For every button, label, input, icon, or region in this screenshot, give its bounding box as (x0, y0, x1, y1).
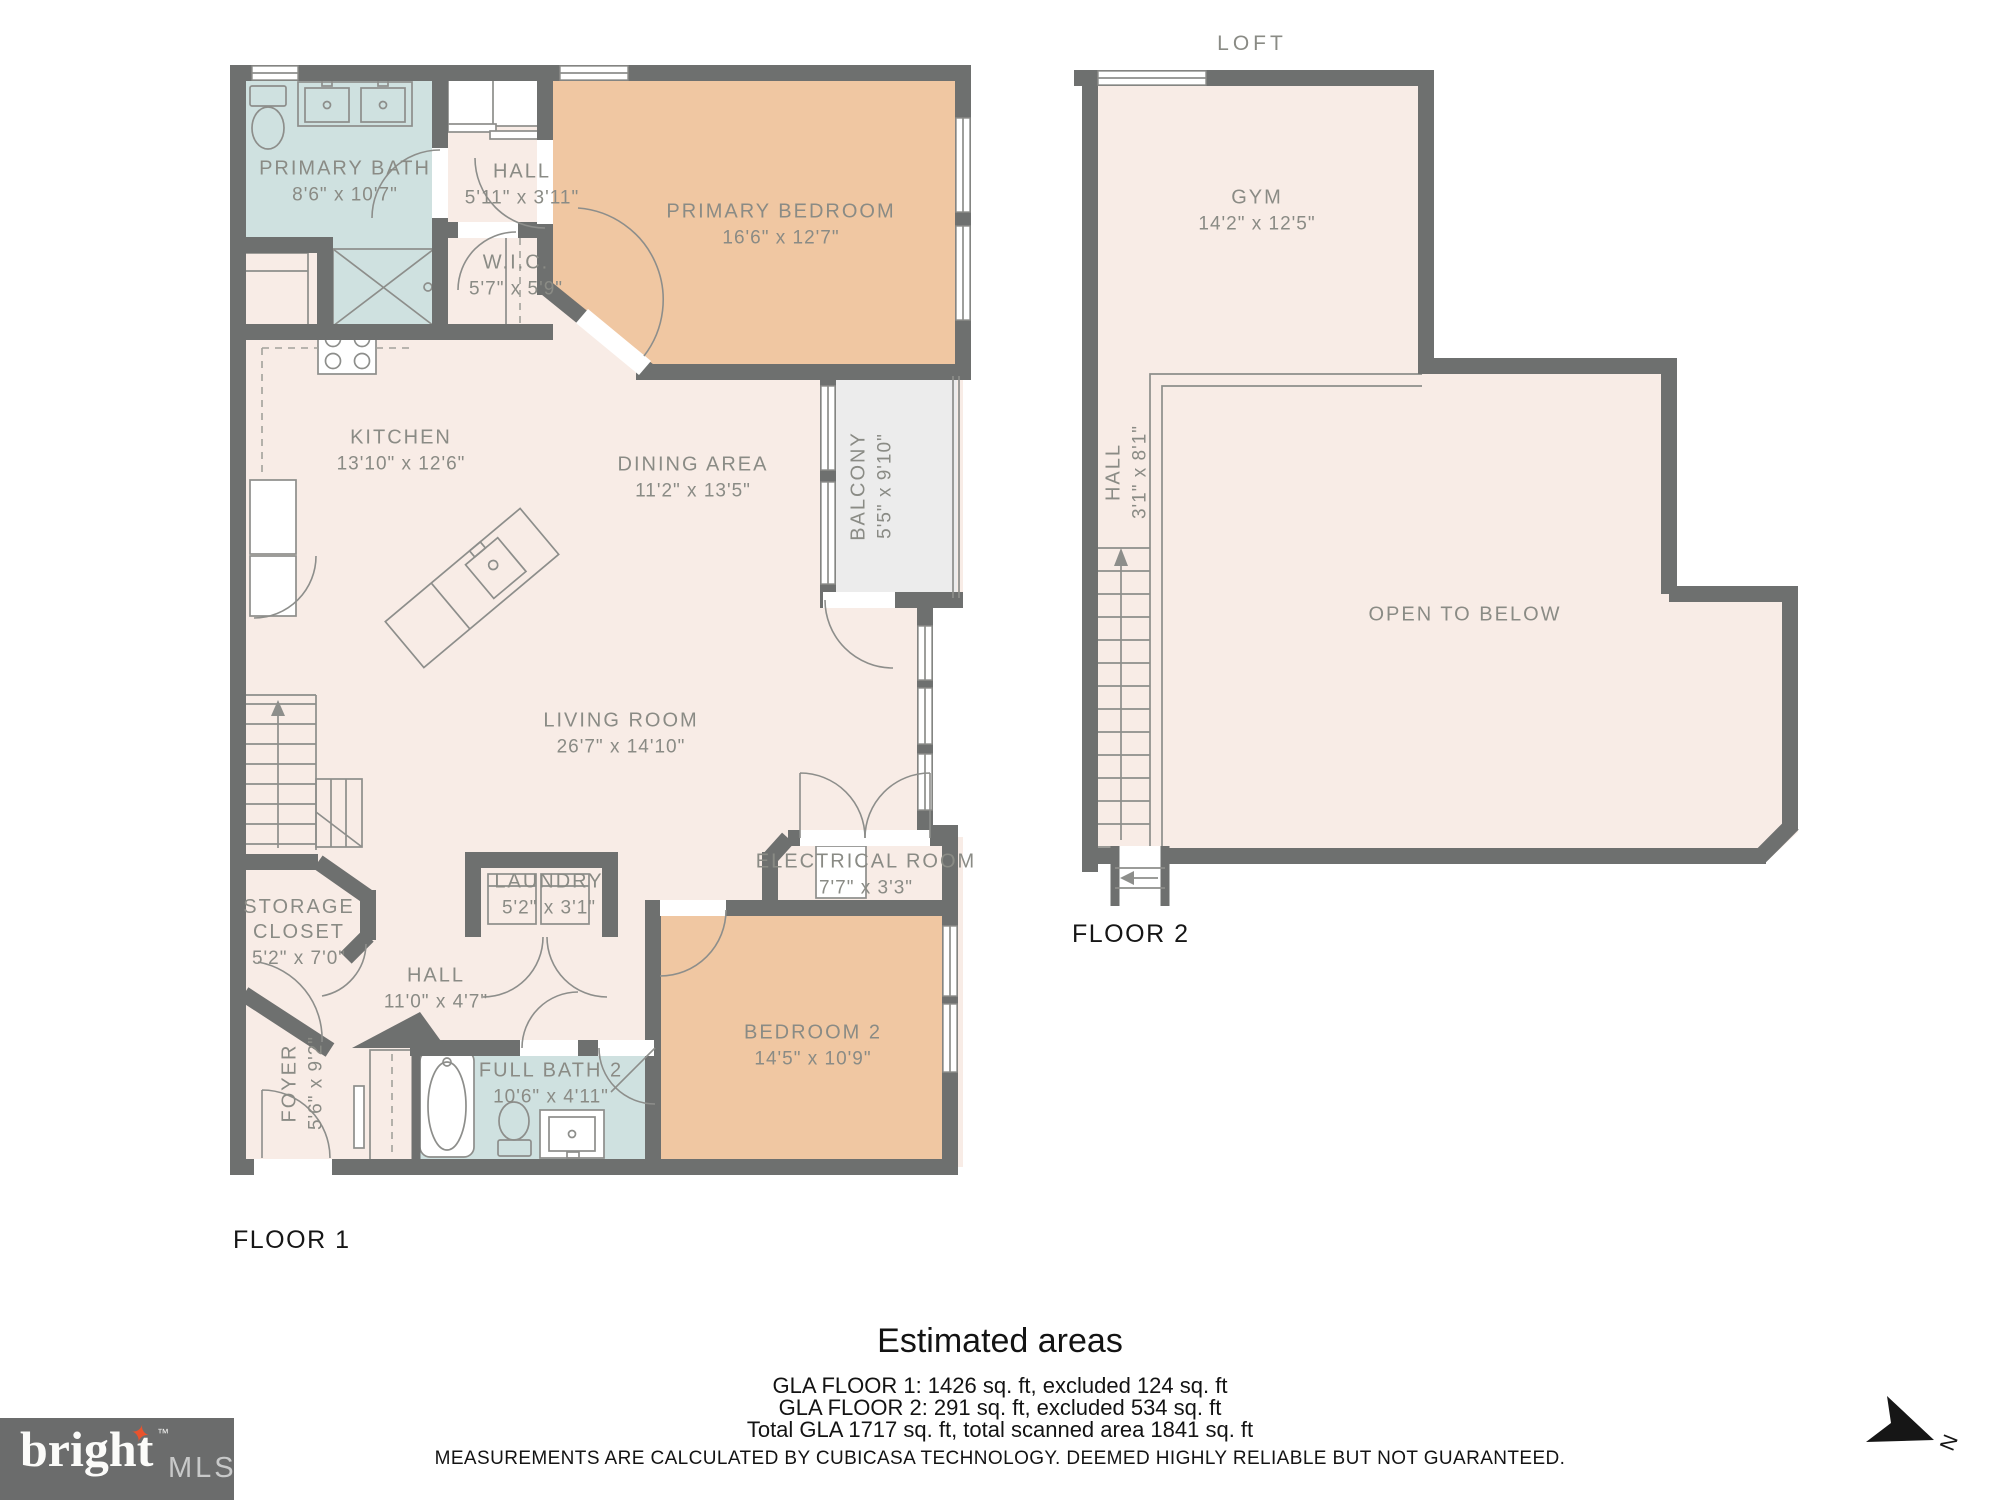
floorplan-drawing (0, 0, 2000, 1500)
floor1-tag: FLOOR 1 (233, 1226, 350, 1255)
room-label-gym: GYM 14'2" x 12'5" (1198, 186, 1315, 237)
windows-floor2 (1098, 71, 1206, 85)
floorplan-page: PRIMARY BATH 8'6" x 10'7" HALL 5'11" x 3… (0, 0, 2000, 1500)
room-label-hall-floor2: HALL 3'1" x 8'1" (1102, 425, 1153, 519)
room-label-kitchen: KITCHEN 13'10" x 12'6" (337, 426, 466, 477)
room-label-dining: DINING AREA 11'2" x 13'5" (618, 453, 769, 504)
brightmls-logo: bright ✦ ™ MLS (0, 1418, 234, 1500)
room-label-open-to-below: OPEN TO BELOW (1368, 603, 1561, 628)
room-label-living: LIVING ROOM 26'7" x 14'10" (543, 709, 698, 760)
mls-wordmark: MLS (168, 1452, 237, 1485)
room-label-storage: STORAGE CLOSET 5'2" x 7'0" (229, 895, 369, 971)
estimated-areas-block: Estimated areas GLA FLOOR 1: 1426 sq. ft… (0, 1322, 2000, 1441)
disclaimer-text: MEASUREMENTS ARE CALCULATED BY CUBICASA … (0, 1448, 2000, 1470)
gla-floor1-line: GLA FLOOR 1: 1426 sq. ft, excluded 124 s… (0, 1375, 2000, 1397)
room-label-primary-bedroom: PRIMARY BEDROOM 16'6" x 12'7" (666, 200, 895, 251)
room-label-primary-bath: PRIMARY BATH 8'6" x 10'7" (259, 157, 431, 208)
room-label-hall-top: HALL 5'11" x 3'11" (465, 160, 579, 211)
room-label-hall-bottom: HALL 11'0" x 4'7" (384, 964, 488, 1015)
room-label-foyer: FOYER 5'6" x 9'2" (278, 1036, 329, 1130)
room-label-laundry: LAUNDRY 5'2" x 3'1" (494, 870, 603, 921)
estimated-areas-title: Estimated areas (0, 1322, 2000, 1361)
room-label-bedroom-2: BEDROOM 2 14'5" x 10'9" (744, 1021, 882, 1072)
gla-total-line: Total GLA 1717 sq. ft, total scanned are… (0, 1419, 2000, 1441)
floor2-tag: FLOOR 2 (1072, 920, 1189, 949)
floor2-plan (1074, 70, 1798, 906)
room-label-full-bath-2: FULL BATH 2 10'6" x 4'11" (479, 1059, 623, 1110)
gla-floor2-line: GLA FLOOR 2: 291 sq. ft, excluded 534 sq… (0, 1397, 2000, 1419)
room-label-wic: W.I.C. 5'7" x 5'9" (469, 251, 563, 302)
floor2-title: LOFT (1217, 32, 1287, 56)
room-label-electrical: ELECTRICAL ROOM 7'7" x 3'3" (756, 850, 976, 901)
stair-stub-floor2 (1115, 846, 1165, 906)
room-label-balcony: BALCONY 5'5" x 9'10" (847, 431, 898, 541)
trademark-symbol: ™ (157, 1426, 169, 1440)
